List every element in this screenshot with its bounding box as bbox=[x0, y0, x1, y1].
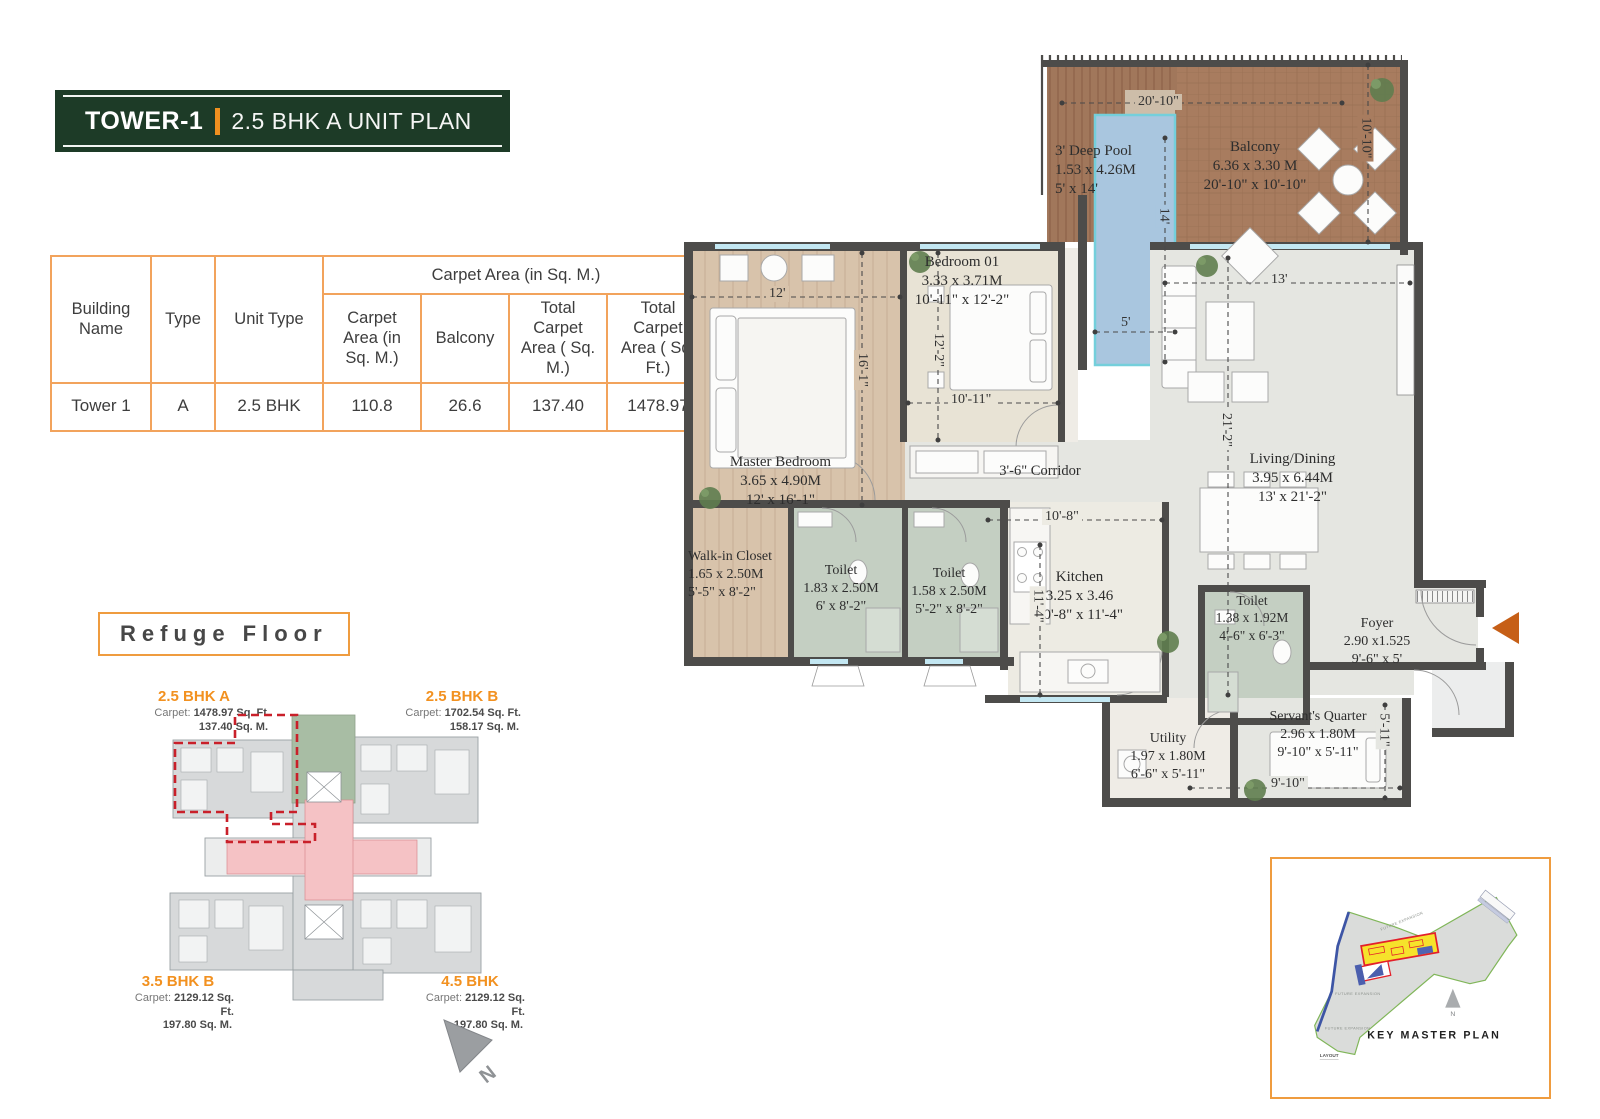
room-label-bedroom1: Bedroom 013.33 x 3.71M10'-11" x 12'-2" bbox=[882, 253, 1042, 311]
north-arrow-refuge: N bbox=[430, 1012, 514, 1096]
refuge-floor-plate bbox=[165, 700, 525, 1010]
col-carpet-area: Carpet Area (in Sq. M.) bbox=[323, 294, 421, 383]
cell-unit: 2.5 BHK bbox=[215, 383, 323, 431]
title-bar: TOWER-1 2.5 BHK A UNIT PLAN bbox=[55, 90, 510, 152]
tower-title: TOWER-1 bbox=[85, 107, 203, 136]
room-label-toilet1: Toilet1.83 x 2.50M6' x 8'-2" bbox=[790, 562, 892, 616]
future-expansion-label: FUTURE EXPANSION bbox=[1380, 911, 1424, 932]
dim-pool-height: 14' bbox=[1155, 205, 1171, 228]
cell-balcony: 26.6 bbox=[421, 383, 509, 431]
future-expansion-label: FUTURE EXPANSION bbox=[1335, 992, 1380, 996]
future-expansion-label: FUTURE EXPANSION bbox=[1325, 1027, 1370, 1031]
cell-building: Tower 1 bbox=[51, 383, 151, 431]
plan-title: 2.5 BHK A UNIT PLAN bbox=[231, 108, 471, 135]
col-unit-type: Unit Type bbox=[215, 256, 323, 383]
dim-pool-width: 5' bbox=[1118, 315, 1134, 331]
room-label-toilet2: Toilet1.58 x 2.50M5'-2" x 8'-2" bbox=[896, 565, 1002, 619]
room-label-foyer: Foyer2.90 x1.5259'-6" x 5' bbox=[1320, 615, 1434, 669]
room-label-toilet3: Toilet1.38 x 1.92M4'-6" x 6'-3" bbox=[1198, 592, 1306, 644]
dim-bedroom1-width: 10'-11" bbox=[948, 392, 994, 408]
room-label-servant: Servant's Quarter2.96 x 1.80M9'-10" x 5'… bbox=[1238, 708, 1398, 762]
col-group-carpet-area: Carpet Area (in Sq. M.) bbox=[323, 256, 709, 294]
dim-bedroom1-height: 12'-2" bbox=[930, 330, 946, 370]
dim-living-width: 13' bbox=[1268, 272, 1291, 288]
key-master-plan-title: KEY MASTER PLAN bbox=[1367, 1029, 1501, 1041]
dim-master-width: 12' bbox=[766, 286, 789, 302]
room-label-balcony: Balcony6.36 x 3.30 M20'-10" x 10'-10" bbox=[1175, 138, 1335, 196]
dim-balcony-height: 10'-10" bbox=[1357, 115, 1373, 162]
col-balcony: Balcony bbox=[421, 294, 509, 383]
floor-plan: 3' Deep Pool1.53 x 4.26M5' x 14' Balcony… bbox=[670, 50, 1550, 850]
room-label-master: Master Bedroom3.65 x 4.90M12' x 16'-1" bbox=[698, 453, 863, 511]
layout-label: LAYOUT bbox=[1320, 1053, 1339, 1058]
refuge-floor-heading: Refuge Floor bbox=[98, 612, 350, 656]
room-label-corridor: 3'-6" Corridor bbox=[965, 462, 1115, 481]
cell-type: A bbox=[151, 383, 215, 431]
room-label-living: Living/Dining3.95 x 6.44M13' x 21'-2" bbox=[1215, 450, 1370, 508]
col-total-sqm: Total Carpet Area ( Sq. M.) bbox=[509, 294, 607, 383]
dim-kitchen-height: 11'-4" bbox=[1030, 586, 1046, 625]
carpet-area-table: Building Name Type Unit Type Carpet Area… bbox=[50, 255, 710, 432]
north-label: N bbox=[1450, 1011, 1455, 1018]
dim-servant-height: 5'-11" bbox=[1376, 710, 1392, 749]
cell-total-sqm: 137.40 bbox=[509, 383, 607, 431]
col-type: Type bbox=[151, 256, 215, 383]
room-label-pool: 3' Deep Pool1.53 x 4.26M5' x 14' bbox=[1055, 142, 1173, 200]
key-master-plan-map: FUTURE EXPANSION FUTURE EXPANSION FUTURE… bbox=[1272, 859, 1545, 1093]
north-label: N bbox=[476, 1062, 501, 1088]
dim-kitchen-width: 10'-8" bbox=[1042, 509, 1082, 525]
title-separator bbox=[215, 108, 220, 135]
unit-plan-page: TOWER-1 2.5 BHK A UNIT PLAN Building Nam… bbox=[0, 0, 1600, 1119]
dim-master-height: 16'-1" bbox=[854, 350, 870, 390]
entry-arrow bbox=[1492, 612, 1519, 644]
table-row: Tower 1 A 2.5 BHK 110.8 26.6 137.40 1478… bbox=[51, 383, 709, 431]
lobby-floor bbox=[1432, 662, 1512, 732]
room-label-walkin: Walk-in Closet1.65 x 2.50M5'-5" x 8'-2" bbox=[688, 548, 772, 602]
dim-servant-width: 9'-10" bbox=[1268, 776, 1308, 792]
cell-carpet: 110.8 bbox=[323, 383, 421, 431]
dim-balcony-width: 20'-10" bbox=[1135, 94, 1182, 110]
north-arrow-keyplan bbox=[1445, 989, 1460, 1008]
key-master-plan: FUTURE EXPANSION FUTURE EXPANSION FUTURE… bbox=[1270, 857, 1551, 1099]
col-building-name: Building Name bbox=[51, 256, 151, 383]
dim-living-height: 21'-2" bbox=[1218, 410, 1234, 450]
room-label-utility: Utility1.97 x 1.80M6'-6" x 5'-11" bbox=[1112, 730, 1224, 784]
